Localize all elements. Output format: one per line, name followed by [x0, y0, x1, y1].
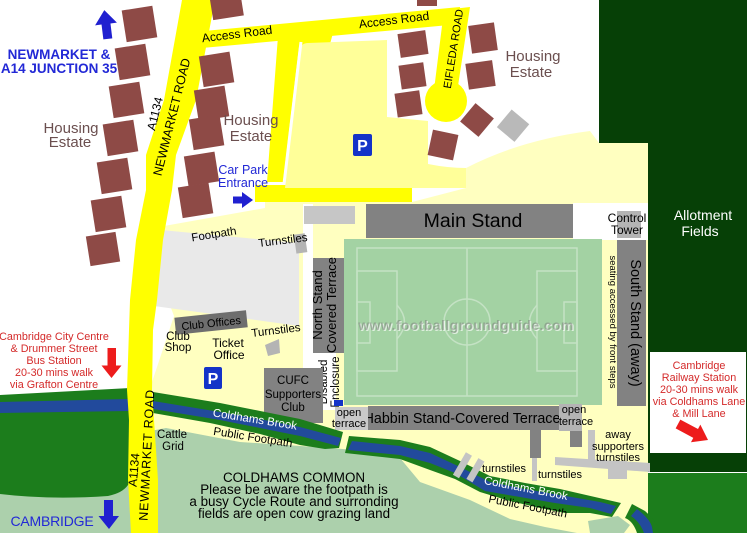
svg-text:open: open [562, 404, 586, 416]
svg-text:Covered Terrace: Covered Terrace [324, 257, 339, 353]
svg-text:Grid: Grid [162, 441, 184, 453]
svg-text:& Drummer Street: & Drummer Street [11, 343, 98, 355]
svg-text:Cattle: Cattle [157, 429, 187, 441]
svg-text:Tower: Tower [611, 223, 643, 237]
svg-text:terrace: terrace [332, 418, 366, 430]
svg-text:& Mill Lane: & Mill Lane [672, 408, 725, 420]
svg-text:Estate: Estate [510, 64, 553, 81]
svg-text:Shop: Shop [165, 342, 192, 354]
svg-text:Cambridge City Centre: Cambridge City Centre [0, 331, 109, 343]
svg-text:CUFC: CUFC [277, 375, 309, 387]
svg-text:Car Park: Car Park [218, 163, 268, 177]
svg-text:Office: Office [213, 348, 244, 362]
svg-text:www.footballgroundguide.com: www.footballgroundguide.com [357, 317, 574, 333]
svg-text:turnstiles: turnstiles [482, 463, 527, 475]
svg-text:via Grafton Centre: via Grafton Centre [10, 379, 98, 391]
svg-text:Allotment: Allotment [674, 207, 732, 223]
svg-text:Fields: Fields [681, 223, 718, 239]
svg-text:turnstiles: turnstiles [538, 469, 583, 481]
svg-text:Railway Station: Railway Station [662, 372, 736, 384]
svg-text:P: P [357, 138, 368, 155]
svg-text:CAMBRIDGE: CAMBRIDGE [11, 513, 94, 529]
svg-text:Club: Club [281, 402, 305, 414]
svg-text:fields are open cow grazing la: fields are open cow grazing land [198, 506, 390, 521]
svg-text:Housing: Housing [505, 48, 560, 65]
svg-text:Bus Station: Bus Station [26, 355, 81, 367]
svg-text:NEWMARKET &: NEWMARKET & [8, 47, 111, 62]
svg-text:20-30 mins walk: 20-30 mins walk [15, 367, 94, 379]
svg-text:Entrance: Entrance [218, 176, 268, 190]
svg-text:South Stand (away): South Stand (away) [627, 259, 643, 386]
svg-text:P: P [208, 371, 219, 388]
svg-text:Estate: Estate [230, 128, 273, 145]
svg-text:turnstiles: turnstiles [596, 452, 641, 464]
svg-text:20-30 mins walk: 20-30 mins walk [660, 384, 739, 396]
svg-text:Housing: Housing [223, 112, 278, 129]
svg-text:Supporters: Supporters [265, 389, 322, 401]
svg-text:Habbin Stand-Covered Terrace: Habbin Stand-Covered Terrace [364, 411, 561, 427]
svg-text:North Stand: North Stand [310, 270, 325, 339]
svg-text:via Coldhams Lane: via Coldhams Lane [653, 396, 745, 408]
svg-text:Cambridge: Cambridge [673, 360, 726, 372]
svg-text:away: away [605, 429, 631, 441]
svg-text:Main Stand: Main Stand [424, 210, 523, 232]
svg-text:Estate: Estate [49, 134, 92, 151]
svg-text:terrace: terrace [559, 416, 593, 428]
svg-text:A14 JUNCTION 35: A14 JUNCTION 35 [1, 61, 118, 76]
svg-text:Enclosure: Enclosure [330, 356, 342, 407]
svg-text:seating accessed by front step: seating accessed by front steps [607, 255, 618, 388]
